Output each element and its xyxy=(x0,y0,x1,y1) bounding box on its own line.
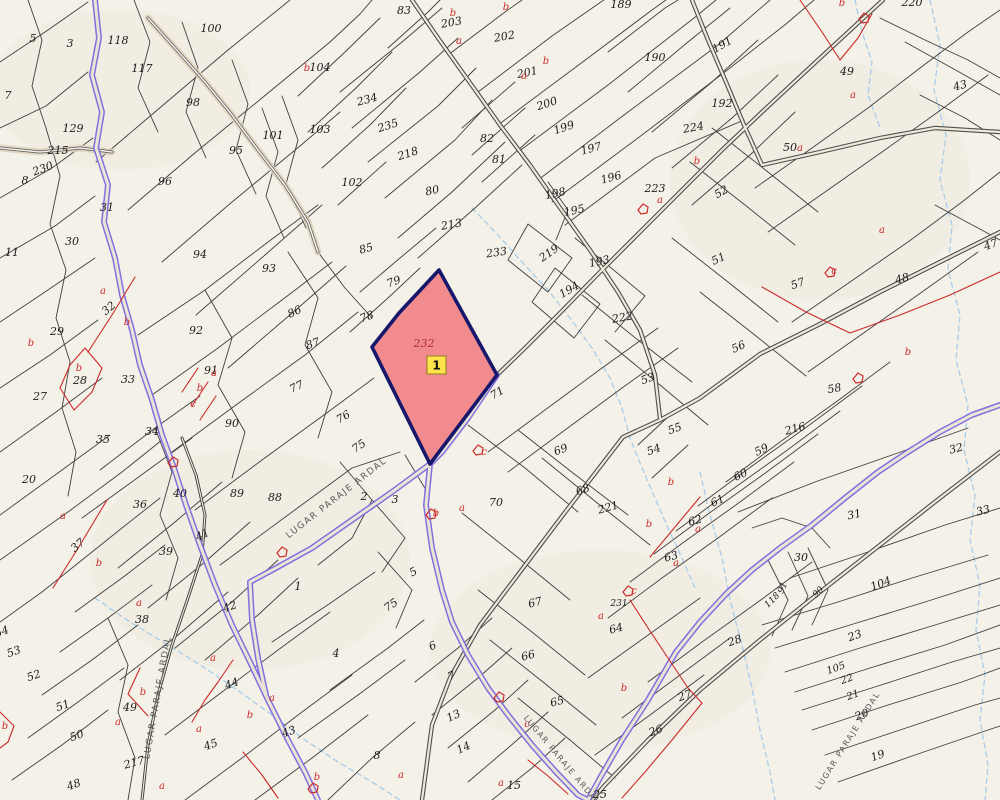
parcel-label: 96 xyxy=(158,175,172,188)
parcel-label: 50 xyxy=(783,141,797,154)
subparcel-letter: a xyxy=(598,611,604,622)
parcel-label: 117 xyxy=(132,62,153,75)
subparcel-letter: a xyxy=(521,71,527,82)
parcel-label: 49 xyxy=(122,701,137,714)
parcel-label: 129 xyxy=(63,122,84,135)
subparcel-letter: b xyxy=(839,0,845,9)
subparcel-letter: b xyxy=(503,2,509,13)
parcel-label: 4 xyxy=(332,647,340,660)
subparcel-letter: b xyxy=(140,687,146,698)
parcel-label: 39 xyxy=(159,545,173,558)
subparcel-letter: b xyxy=(124,317,130,328)
subparcel-letter: a xyxy=(797,143,803,154)
subparcel-letter: a xyxy=(115,717,121,728)
cadastral-map-viewport[interactable]: 5311811771009812921523089695313011942932… xyxy=(0,0,1000,800)
selected-parcel-number: 232 xyxy=(413,337,435,350)
parcel-label: 83 xyxy=(397,4,411,17)
parcel-label: 95 xyxy=(229,144,243,157)
parcel-label: 93 xyxy=(262,262,276,275)
parcel-label: 5 xyxy=(30,32,37,45)
parcel-label: 11 xyxy=(5,246,19,259)
parcel-label: 88 xyxy=(268,491,282,504)
parcel-label: 58 xyxy=(826,381,842,396)
parcel-label: 70 xyxy=(489,496,503,509)
parcel-label: 100 xyxy=(201,22,222,35)
subparcel-letter: b xyxy=(96,558,102,569)
subparcel-letter: c xyxy=(190,399,196,410)
parcel-label: 189 xyxy=(611,0,632,11)
subparcel-letter: a xyxy=(196,724,202,735)
parcel-label: 15 xyxy=(507,779,521,792)
parcel-label: 30 xyxy=(794,551,808,564)
subparcel-letter: a xyxy=(211,368,217,379)
subparcel-letter: a xyxy=(100,286,106,297)
subparcel-letter: a xyxy=(60,511,66,522)
terrain-shading xyxy=(430,550,770,750)
subparcel-letter: a xyxy=(673,558,679,569)
parcel-label: 90 xyxy=(225,417,239,430)
subparcel-letter: b xyxy=(28,338,34,349)
subparcel-letter: b xyxy=(668,477,674,488)
parcel-label: 3 xyxy=(392,493,399,506)
subparcel-letter: b xyxy=(694,156,700,167)
parcel-label: 192 xyxy=(712,97,733,110)
parcel-label: 101 xyxy=(263,129,284,142)
parcel-label: 92 xyxy=(189,324,203,337)
parcel-label: 82 xyxy=(480,132,494,145)
subparcel-letter: b xyxy=(76,363,82,374)
parcel-label: 223 xyxy=(644,182,666,195)
subparcel-letter: a xyxy=(210,653,216,664)
parcel-label: 35 xyxy=(96,433,110,446)
parcel-label: 8 xyxy=(22,174,29,187)
parcel-label: 40 xyxy=(172,487,187,500)
subparcel-letter: a xyxy=(695,524,701,535)
subparcel-letter: a xyxy=(136,598,142,609)
subparcel-letter: b xyxy=(450,8,456,19)
parcel-label: 38 xyxy=(135,613,149,626)
parcel-label: 30 xyxy=(65,235,79,248)
parcel-label: 220 xyxy=(901,0,923,9)
parcel-label: 104 xyxy=(310,61,331,74)
parcel-label: 33 xyxy=(121,373,135,386)
subparcel-letter: b xyxy=(197,383,203,394)
parcel-label: 28 xyxy=(72,374,87,387)
parcel-label: 190 xyxy=(645,51,666,64)
subparcel-letter: a xyxy=(850,90,856,101)
subparcel-letter: b xyxy=(2,721,8,732)
parcel-label: 49 xyxy=(839,65,854,78)
parcel-label: 20 xyxy=(21,473,36,486)
subparcel-letter: a xyxy=(269,693,275,704)
subparcel-letter: a xyxy=(459,503,465,514)
parcel-label: 3 xyxy=(67,37,74,50)
subparcel-letter: b xyxy=(304,63,310,74)
parcel-label: 27 xyxy=(32,390,47,403)
subparcel-letter: b xyxy=(314,772,320,783)
selection-marker-number: 1 xyxy=(432,359,440,373)
parcel-label: 29 xyxy=(49,325,64,338)
subparcel-letter: a xyxy=(657,195,663,206)
parcel-label: 34 xyxy=(145,425,159,438)
subparcel-letter: b xyxy=(543,56,549,67)
subparcel-letter: c xyxy=(481,447,487,458)
parcel-label: 1 xyxy=(295,580,302,593)
subparcel-letter: b xyxy=(621,683,627,694)
parcel-label: 94 xyxy=(193,248,207,261)
cadastral-map[interactable]: 5311811771009812921523089695313011942932… xyxy=(0,0,1000,800)
subparcel-letter: b xyxy=(905,347,911,358)
parcel-label: 36 xyxy=(133,498,147,511)
parcel-label: 2 xyxy=(360,490,368,503)
parcel-label: 7 xyxy=(5,89,12,102)
subparcel-letter: c xyxy=(631,586,637,597)
parcel-label: 81 xyxy=(492,153,506,166)
subparcel-letter: a xyxy=(159,781,165,792)
subparcel-letter: a xyxy=(456,36,462,47)
parcel-label: 215 xyxy=(47,144,69,157)
parcel-label: 231 xyxy=(609,599,627,609)
parcel-label: 8 xyxy=(374,749,381,762)
parcel-label: 31 xyxy=(100,201,114,214)
parcel-label: 98 xyxy=(186,96,200,109)
parcel-label: 102 xyxy=(342,176,363,189)
subparcel-letter: b xyxy=(433,508,439,519)
subparcel-letter: a xyxy=(398,770,404,781)
parcel-label: 89 xyxy=(230,487,244,500)
subparcel-letter: a xyxy=(879,225,885,236)
subparcel-letter: b xyxy=(646,519,652,530)
subparcel-letter: a xyxy=(498,778,504,789)
subparcel-letter: c xyxy=(831,266,837,277)
parcel-label: 118 xyxy=(108,34,129,47)
parcel-label: 103 xyxy=(310,123,331,136)
subparcel-letter: b xyxy=(247,710,253,721)
